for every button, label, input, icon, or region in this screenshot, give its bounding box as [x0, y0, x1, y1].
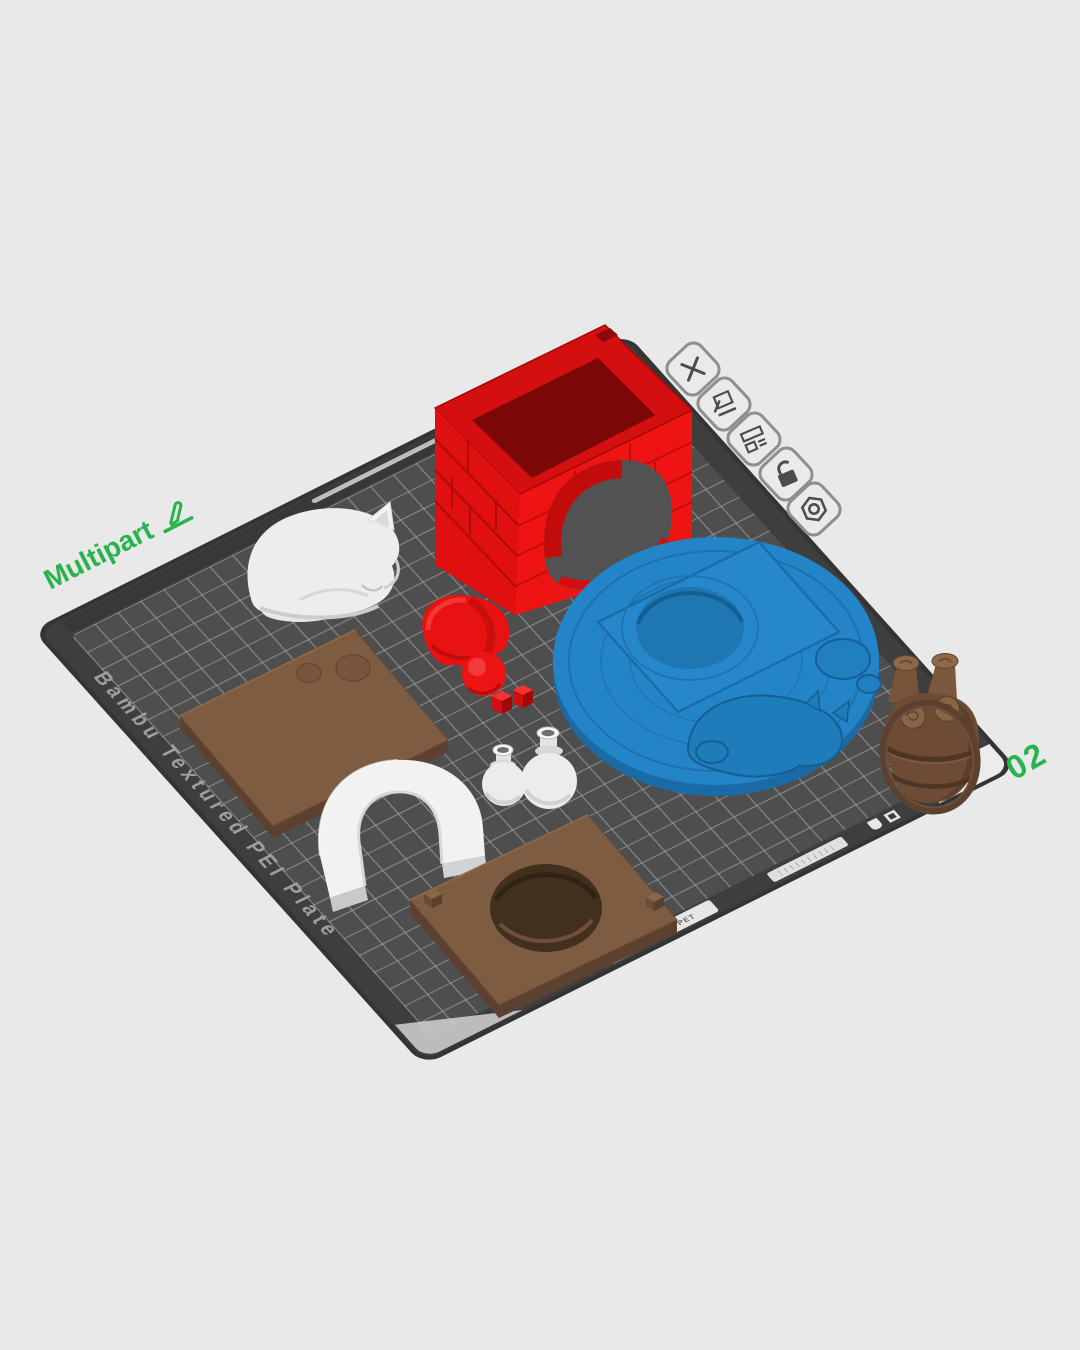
model-santa-hat[interactable]	[422, 595, 509, 696]
model-log-basket[interactable]	[872, 654, 989, 822]
model-sleeping-cat[interactable]	[248, 502, 400, 622]
model-two-jugs[interactable]	[482, 727, 577, 809]
x-icon	[671, 347, 716, 392]
model-engraved-round-base[interactable]	[553, 537, 881, 796]
model-flat-plate-two-recesses[interactable]	[180, 630, 448, 838]
models-canvas	[0, 0, 1080, 1350]
layout-icon	[732, 417, 777, 462]
hex-gear-icon	[792, 487, 837, 532]
